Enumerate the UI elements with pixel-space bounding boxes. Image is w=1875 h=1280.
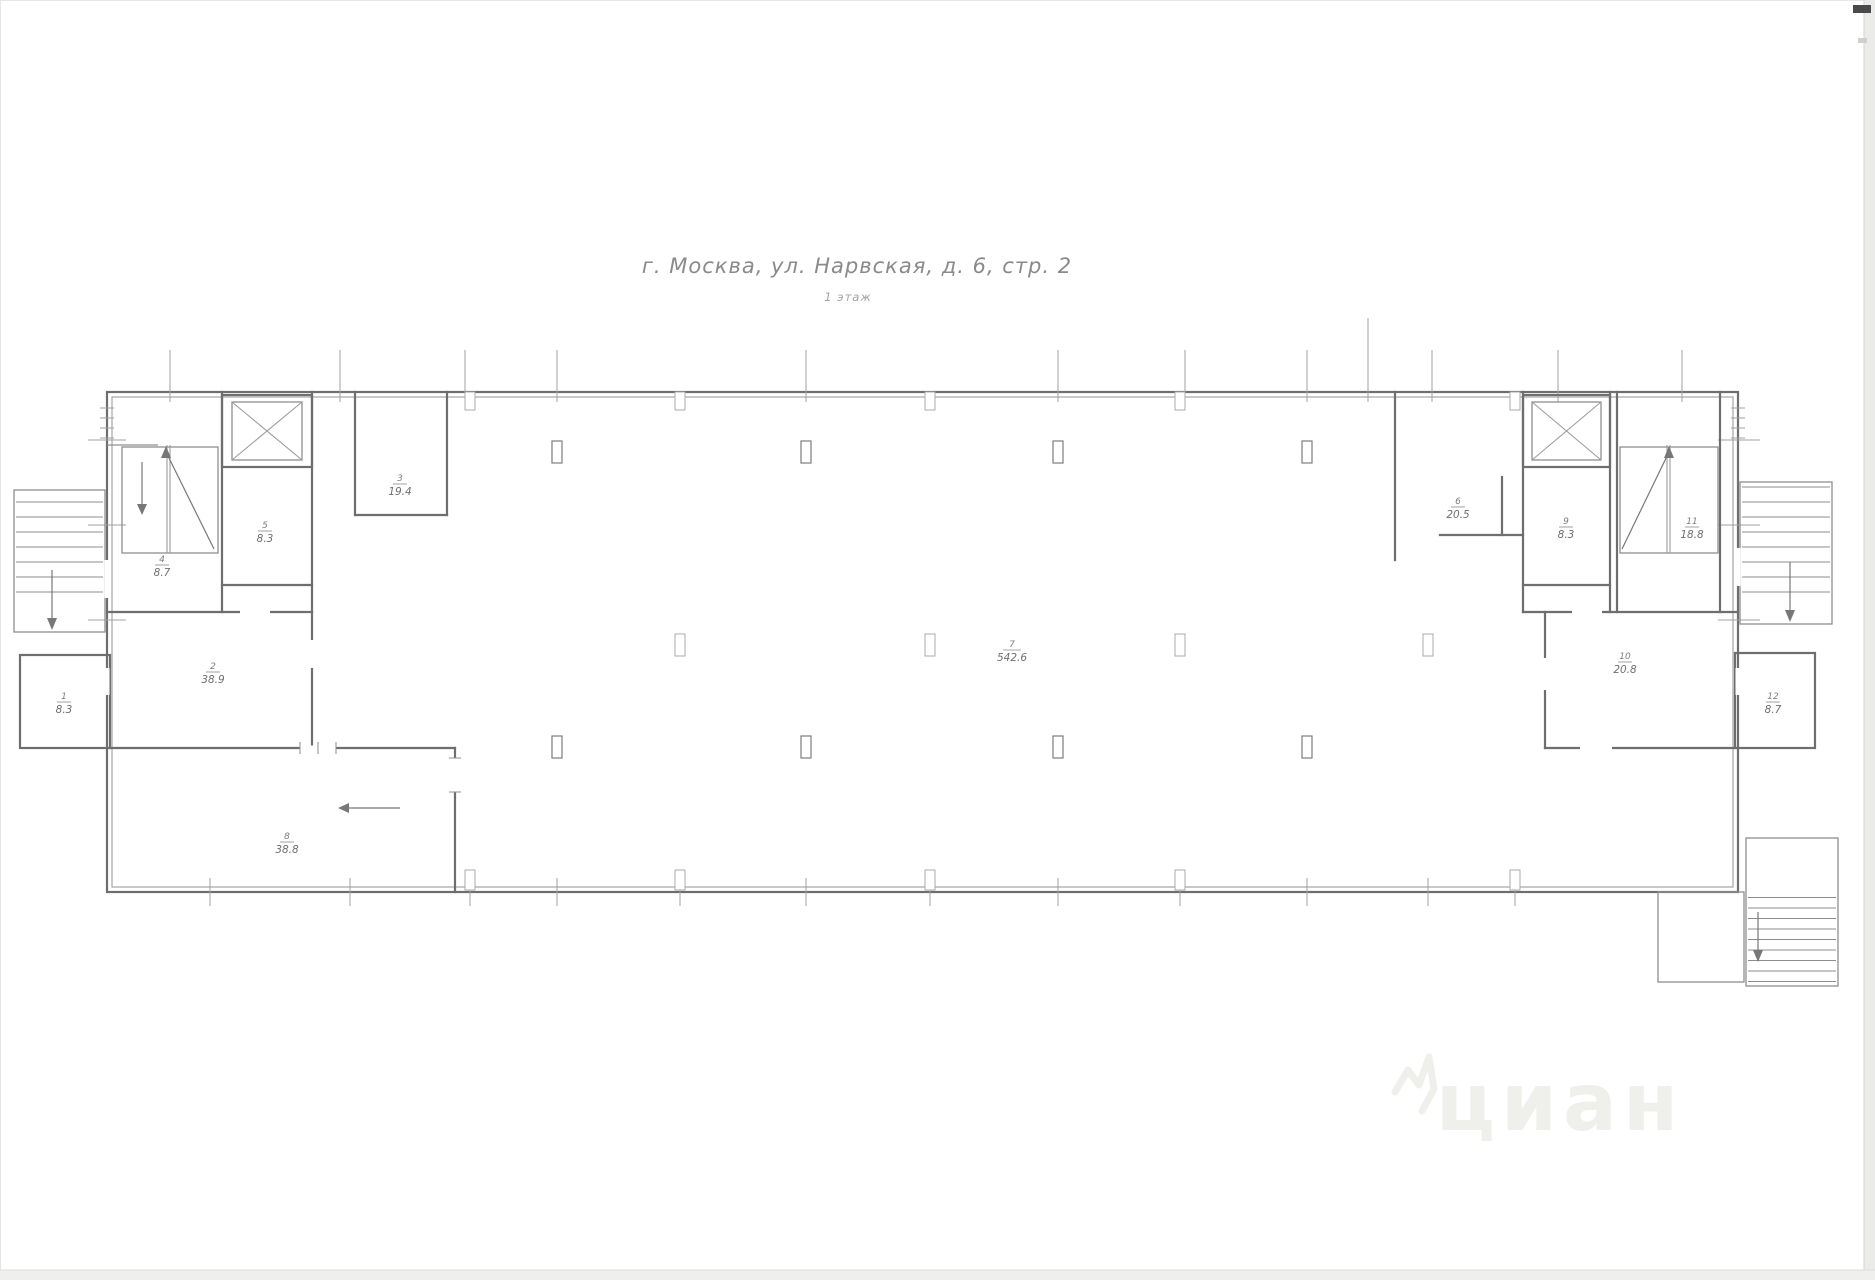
room-area: 18.8	[1680, 529, 1704, 541]
room-label: 8 38.8	[275, 832, 299, 856]
outer-wall	[107, 392, 1738, 892]
room-area: 8.3	[257, 533, 274, 545]
scan-bottom-strip	[0, 1270, 1875, 1280]
watermark: циан	[1395, 1056, 1684, 1149]
room-area: 542.6	[997, 652, 1027, 664]
watermark-text: циан	[1436, 1056, 1685, 1149]
room-area: 38.9	[201, 674, 225, 686]
left-elevator-shaft	[222, 395, 312, 467]
building-outline	[107, 392, 1738, 892]
scan-edge-mark	[1858, 38, 1867, 43]
room-number: 5	[262, 521, 268, 531]
room-number: 2	[210, 662, 216, 672]
stair-up-arrow-icon	[1664, 446, 1674, 458]
room-number: 6	[1455, 497, 1461, 507]
room-area: 20.8	[1613, 664, 1637, 676]
bottom-right-exterior-stair	[1658, 838, 1838, 986]
left-core	[14, 392, 455, 892]
page-title: г. Москва, ул. Нарвская, д. 6, стр. 2	[642, 254, 1072, 278]
room-area: 8.3	[1558, 529, 1575, 541]
room-area: 20.5	[1446, 509, 1470, 521]
room-label: 10 20.8	[1613, 652, 1637, 676]
room-number: 8	[284, 832, 290, 842]
exterior-stair-treads	[1748, 890, 1836, 982]
right-core	[1395, 392, 1838, 986]
room-label: 1 8.3	[56, 692, 73, 716]
scan-right-strip	[1864, 0, 1875, 1280]
room-label: 6 20.5	[1446, 497, 1470, 521]
scan-corner-mark	[1853, 5, 1871, 13]
page-subtitle: 1 этаж	[824, 290, 871, 304]
exterior-stair-treads	[16, 492, 103, 602]
room-number: 9	[1563, 517, 1569, 527]
room-area: 8.7	[154, 567, 171, 579]
room-label: 12 8.7	[1765, 692, 1782, 716]
left-arrow-icon	[338, 803, 349, 813]
watermark-bird-icon	[1395, 1057, 1434, 1111]
right-elevator-shaft	[1523, 395, 1610, 467]
room-number: 12	[1767, 692, 1779, 702]
stair-down-arrow-icon	[1785, 610, 1795, 622]
room-area: 38.8	[275, 844, 299, 856]
stair-vestibule	[1658, 892, 1744, 982]
room-area: 8.3	[56, 704, 73, 716]
room-label: 4 8.7	[154, 555, 171, 579]
room-number: 10	[1619, 652, 1631, 662]
axis-ticks	[88, 318, 1760, 906]
room-label: 11 18.8	[1680, 517, 1704, 541]
stair-direction-line	[166, 452, 214, 549]
structural-columns	[465, 392, 1520, 890]
floor-plan: 1 8.3 4 8.7 5 8.3 3 19.4 2	[14, 318, 1838, 986]
room-number: 7	[1009, 640, 1015, 650]
right-core-walls	[1395, 392, 1738, 748]
stair-direction-line	[1622, 452, 1669, 549]
stair-down-arrow-icon	[137, 504, 147, 515]
room-area: 19.4	[388, 486, 411, 498]
room-number: 3	[397, 474, 403, 484]
left-stairwell	[122, 445, 218, 553]
room-label: 2 38.9	[201, 662, 225, 686]
room-label: 3 19.4	[388, 474, 411, 498]
exterior-stair-treads	[1742, 484, 1830, 594]
right-exterior-stair	[1740, 482, 1832, 624]
room-label: 9 8.3	[1558, 517, 1575, 541]
room-label: 5 8.3	[257, 521, 274, 545]
room-number: 1	[61, 692, 67, 702]
stair-down-arrow-icon	[47, 618, 57, 630]
door-openings	[107, 548, 1738, 792]
room-area: 8.7	[1765, 704, 1782, 716]
left-exterior-stair	[14, 490, 105, 632]
floor-plan-scan: циан г. Москва, ул. Нарвская, д. 6, стр.…	[0, 0, 1875, 1280]
room-number: 11	[1686, 517, 1697, 527]
room-label: 7 542.6	[997, 640, 1027, 664]
hall	[338, 803, 400, 813]
room-number: 4	[159, 555, 165, 565]
